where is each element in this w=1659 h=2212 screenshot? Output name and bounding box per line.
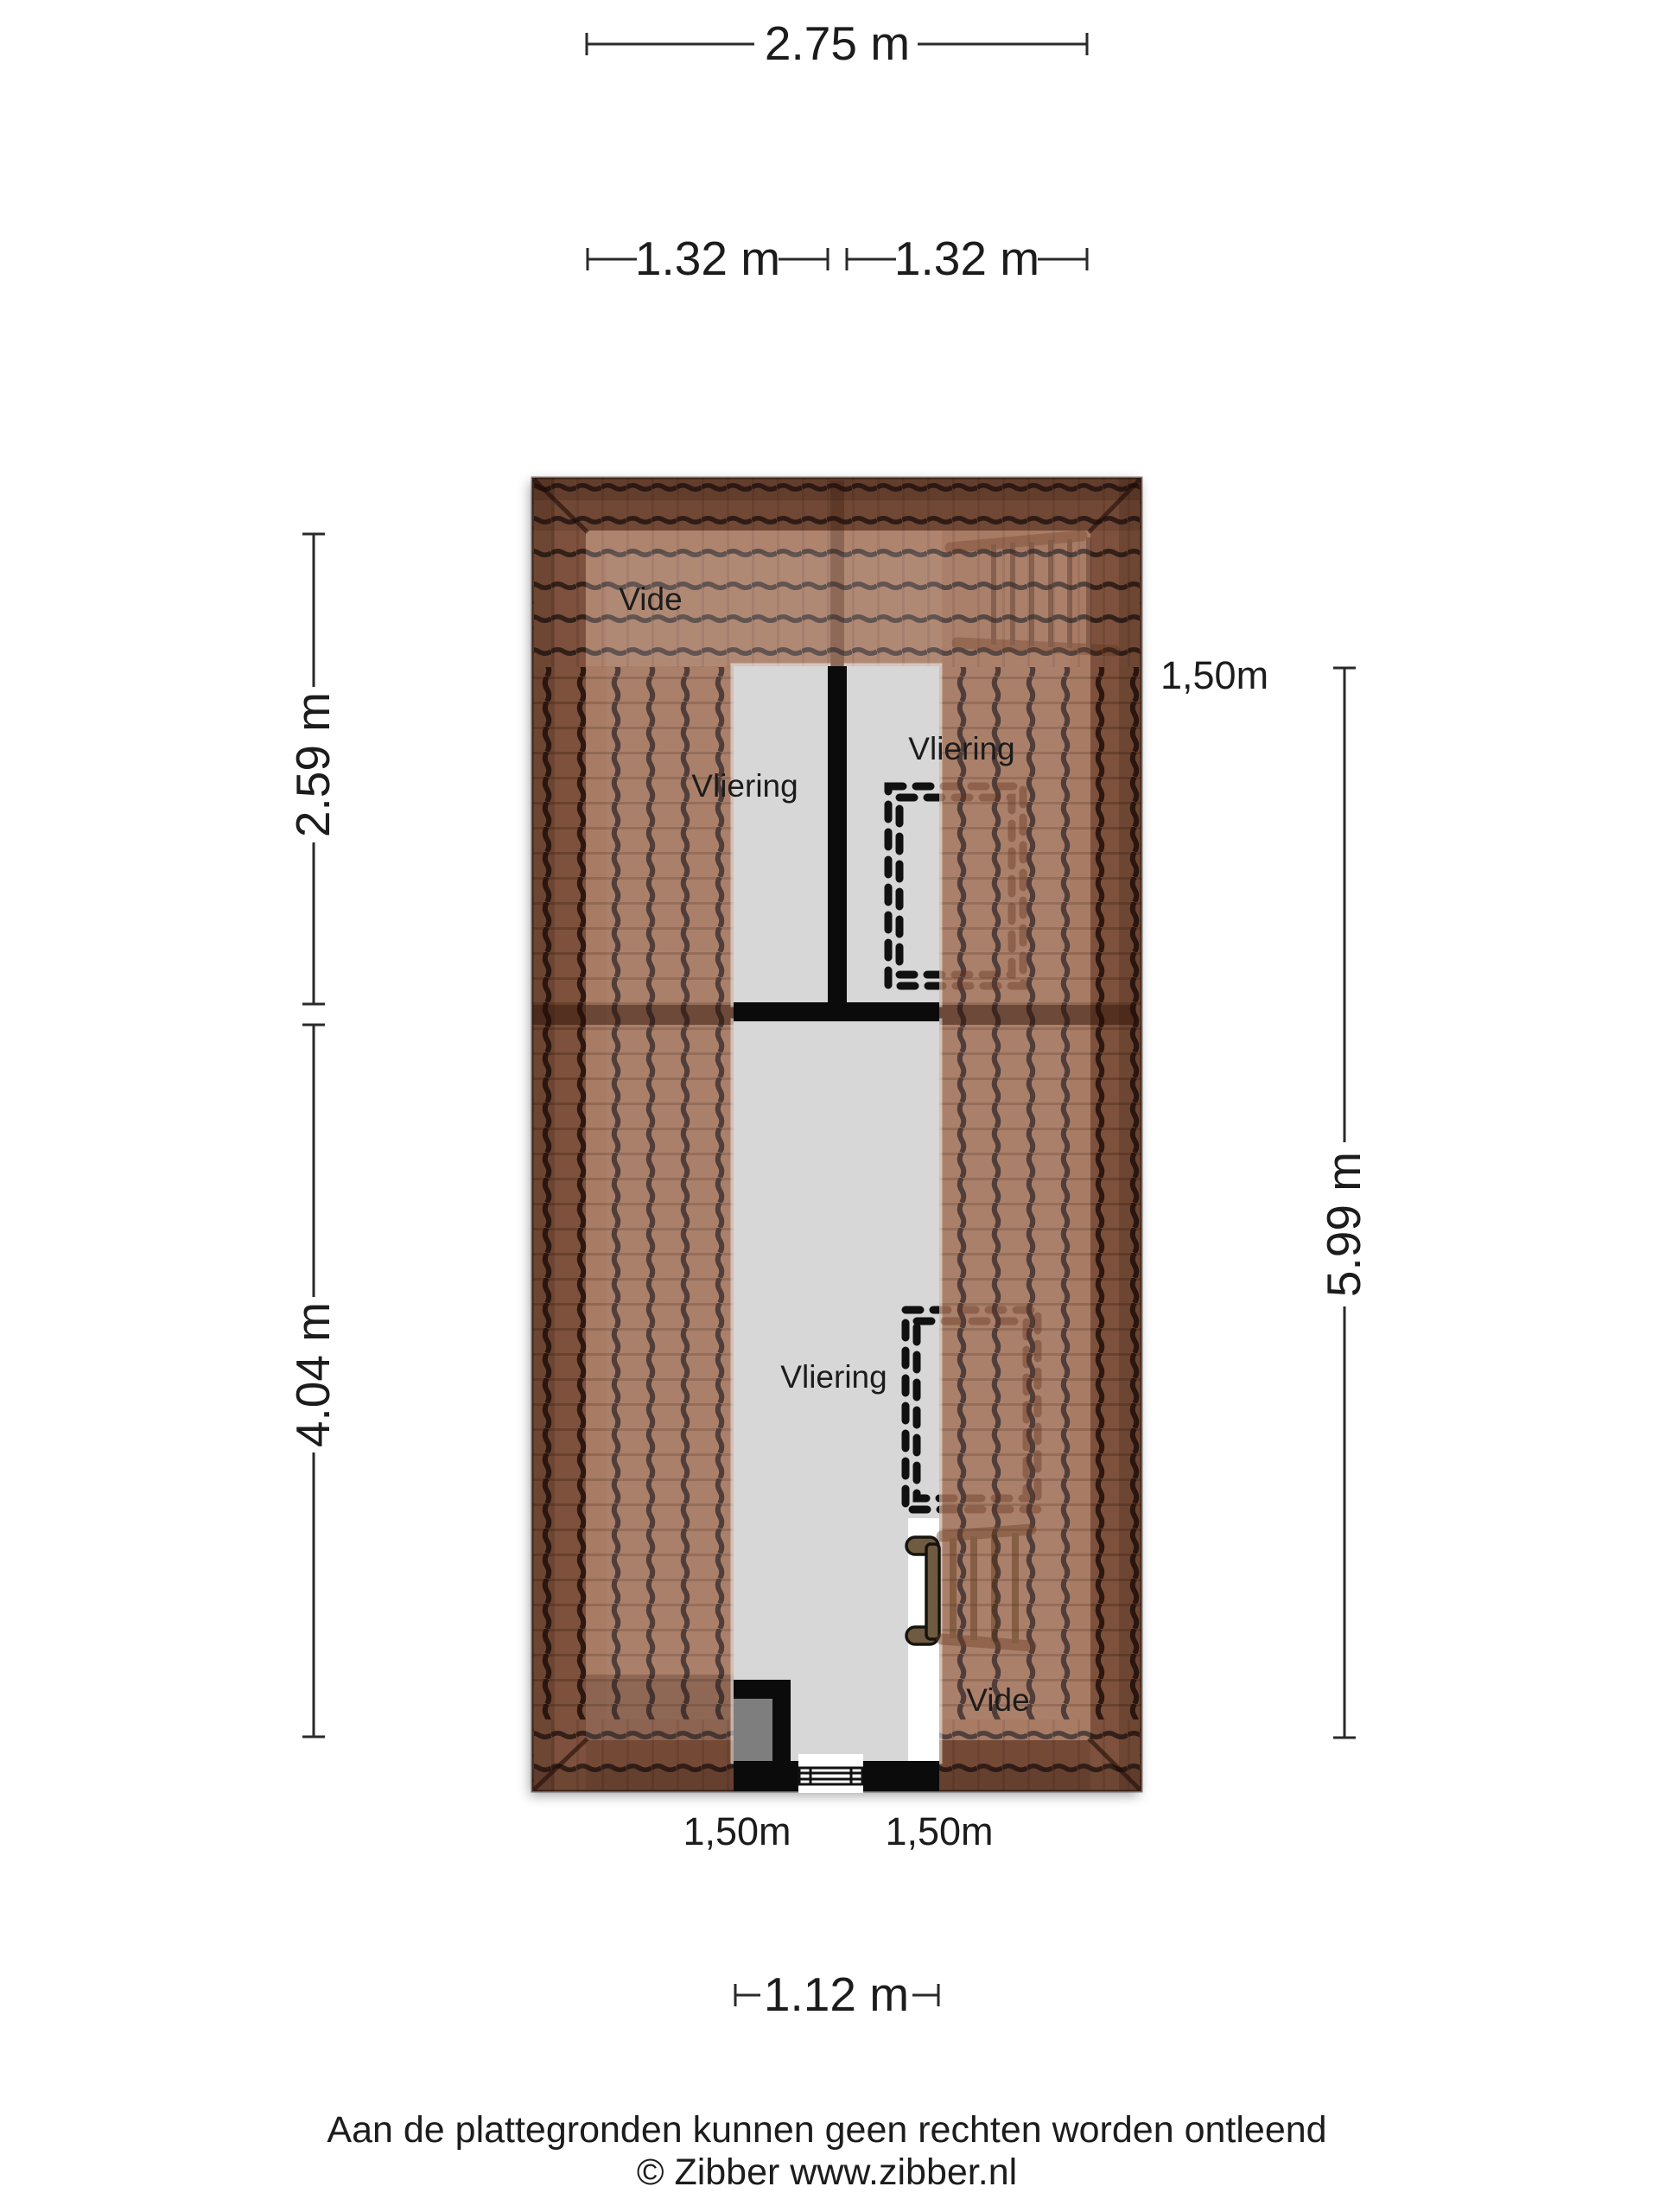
svg-text:Vliering: Vliering: [908, 731, 1014, 766]
svg-text:Vliering: Vliering: [780, 1359, 887, 1395]
svg-text:1,50m: 1,50m: [1160, 653, 1268, 697]
svg-text:5.99 m: 5.99 m: [1317, 1152, 1370, 1297]
svg-text:2.59 m: 2.59 m: [286, 692, 340, 837]
svg-text:1.12 m: 1.12 m: [764, 1967, 909, 2021]
svg-text:Vide: Vide: [619, 582, 682, 617]
svg-text:2.75 m: 2.75 m: [765, 16, 910, 70]
svg-text:Vide: Vide: [966, 1682, 1029, 1718]
svg-text:Vliering: Vliering: [691, 768, 798, 804]
svg-text:4.04 m: 4.04 m: [286, 1302, 340, 1447]
svg-text:1,50m: 1,50m: [885, 1809, 993, 1853]
svg-text:Aan de plattegronden kunnen ge: Aan de plattegronden kunnen geen rechten…: [327, 2109, 1326, 2151]
svg-text:1.32 m: 1.32 m: [894, 232, 1039, 285]
svg-text:1.32 m: 1.32 m: [635, 232, 780, 285]
svg-text:1,50m: 1,50m: [683, 1809, 791, 1853]
svg-text:© Zibber www.zibber.nl: © Zibber www.zibber.nl: [637, 2152, 1017, 2193]
